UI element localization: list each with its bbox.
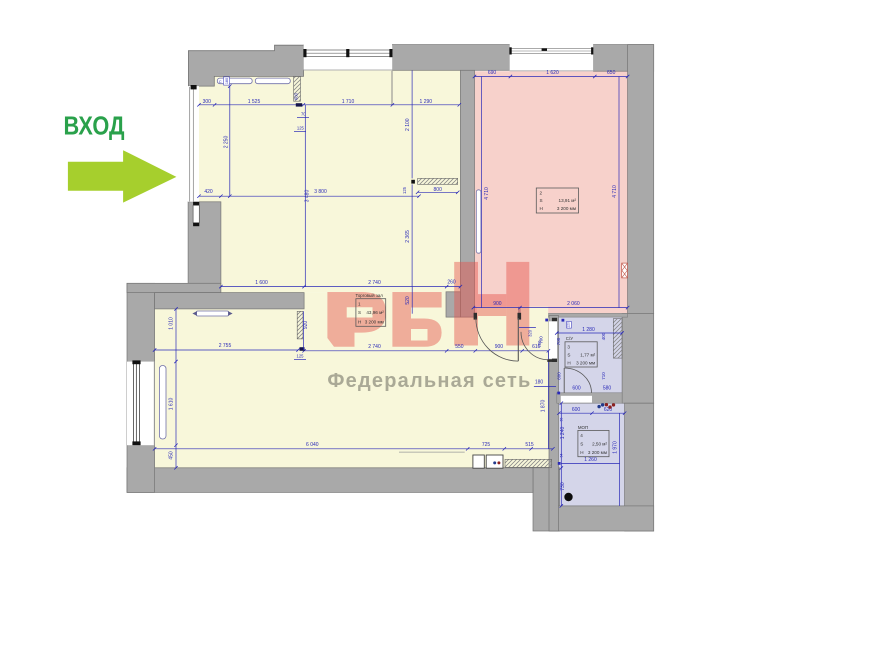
svg-text:43,96 м²: 43,96 м² (366, 310, 384, 315)
svg-text:125: 125 (297, 126, 305, 131)
svg-text:2 755: 2 755 (219, 343, 232, 349)
svg-text:580: 580 (603, 386, 612, 392)
svg-text:800: 800 (434, 187, 443, 193)
svg-text:С/У: С/У (566, 336, 573, 341)
svg-text:1 240: 1 240 (560, 427, 566, 440)
svg-text:1: 1 (358, 301, 361, 306)
svg-text:125: 125 (402, 186, 407, 194)
svg-text:515: 515 (525, 442, 534, 448)
svg-text:2 365: 2 365 (405, 230, 411, 243)
svg-text:4 710: 4 710 (484, 187, 490, 200)
svg-text:1 260: 1 260 (584, 457, 597, 463)
svg-text:600: 600 (294, 92, 299, 100)
svg-text:S: S (580, 441, 583, 446)
svg-text:690: 690 (488, 70, 497, 76)
svg-text:S: S (567, 352, 570, 357)
svg-text:920: 920 (303, 321, 309, 330)
svg-text:520: 520 (405, 296, 411, 305)
svg-text:700: 700 (539, 336, 544, 344)
svg-text:450: 450 (168, 451, 174, 460)
svg-text:H: H (358, 320, 361, 325)
svg-text:730: 730 (560, 482, 566, 491)
svg-text:320: 320 (527, 329, 532, 337)
svg-text:1,77 м²: 1,77 м² (580, 352, 595, 357)
svg-text:H: H (540, 206, 543, 211)
svg-text:2: 2 (540, 191, 543, 196)
svg-text:900: 900 (495, 344, 504, 350)
svg-text:180: 180 (535, 380, 544, 386)
svg-text:550: 550 (455, 344, 464, 350)
svg-text:4: 4 (580, 433, 583, 438)
svg-text:55: 55 (560, 418, 564, 422)
svg-text:1 620: 1 620 (546, 70, 559, 76)
svg-text:1 610: 1 610 (168, 398, 174, 411)
svg-text:1 280: 1 280 (582, 327, 595, 333)
svg-text:725: 725 (482, 442, 491, 448)
svg-text:1 970: 1 970 (613, 441, 619, 454)
svg-text:1 600: 1 600 (255, 280, 268, 286)
svg-text:3 200 мм: 3 200 мм (557, 206, 576, 211)
svg-text:180: 180 (225, 78, 229, 84)
svg-text:400: 400 (601, 332, 606, 340)
svg-text:2 250: 2 250 (223, 136, 229, 149)
svg-text:ВХОД: ВХОД (64, 113, 125, 141)
svg-text:1 290: 1 290 (420, 99, 433, 105)
svg-text:4 710: 4 710 (612, 185, 618, 198)
svg-text:2 740: 2 740 (368, 280, 381, 286)
svg-text:Торговый зал: Торговый зал (356, 293, 384, 298)
svg-text:МОП: МОП (578, 425, 588, 430)
svg-text:300: 300 (203, 99, 212, 105)
svg-text:H: H (580, 450, 583, 455)
svg-text:2 060: 2 060 (567, 301, 580, 307)
svg-text:260: 260 (447, 279, 456, 285)
svg-text:3 800: 3 800 (314, 189, 327, 195)
svg-text:120: 120 (567, 322, 571, 328)
svg-text:70: 70 (301, 112, 306, 117)
svg-text:3: 3 (567, 344, 570, 349)
svg-text:2 100: 2 100 (405, 118, 411, 131)
svg-text:125: 125 (297, 354, 305, 359)
svg-text:700: 700 (556, 337, 561, 345)
svg-text:600: 600 (557, 372, 562, 380)
svg-text:600: 600 (572, 386, 581, 392)
svg-text:710: 710 (601, 372, 606, 380)
svg-text:S: S (540, 198, 543, 203)
svg-text:900: 900 (493, 301, 502, 307)
svg-text:3 480: 3 480 (304, 190, 310, 203)
svg-text:1 710: 1 710 (342, 99, 355, 105)
svg-text:3 200 мм: 3 200 мм (365, 320, 384, 325)
svg-text:6 040: 6 040 (306, 442, 319, 448)
svg-text:650: 650 (607, 70, 616, 76)
svg-text:S: S (358, 310, 361, 315)
svg-text:1 010: 1 010 (168, 317, 174, 330)
svg-text:3 200 мм: 3 200 мм (576, 361, 595, 366)
svg-text:3 200 мм: 3 200 мм (588, 450, 607, 455)
svg-text:1 870: 1 870 (540, 400, 546, 413)
svg-text:2 740: 2 740 (368, 344, 381, 350)
svg-text:Федеральная сеть: Федеральная сеть (327, 370, 531, 392)
svg-text:420: 420 (204, 189, 213, 195)
svg-text:13,91 м²: 13,91 м² (559, 198, 577, 203)
svg-text:1 525: 1 525 (248, 99, 261, 105)
svg-text:54: 54 (560, 454, 564, 458)
svg-text:2,50 м²: 2,50 м² (592, 441, 607, 446)
svg-text:H: H (567, 361, 570, 366)
svg-text:600: 600 (572, 407, 581, 413)
svg-text:С: С (219, 79, 222, 84)
